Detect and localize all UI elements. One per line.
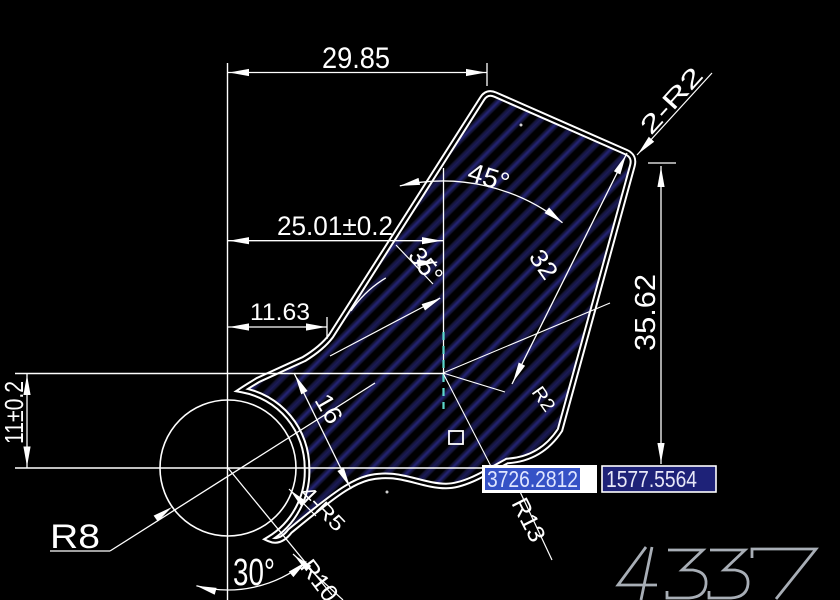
- svg-text:11.63: 11.63: [250, 299, 310, 326]
- svg-text:29.85: 29.85: [322, 42, 390, 75]
- svg-text:25.01±0.2: 25.01±0.2: [277, 211, 393, 241]
- svg-text:R8: R8: [50, 518, 100, 556]
- svg-text:11±0.2: 11±0.2: [0, 381, 29, 444]
- svg-text:30°: 30°: [233, 552, 275, 594]
- svg-text:3726.2812: 3726.2812: [487, 466, 578, 492]
- svg-text:35.62: 35.62: [630, 274, 662, 351]
- svg-text:1577.5564: 1577.5564: [606, 466, 697, 492]
